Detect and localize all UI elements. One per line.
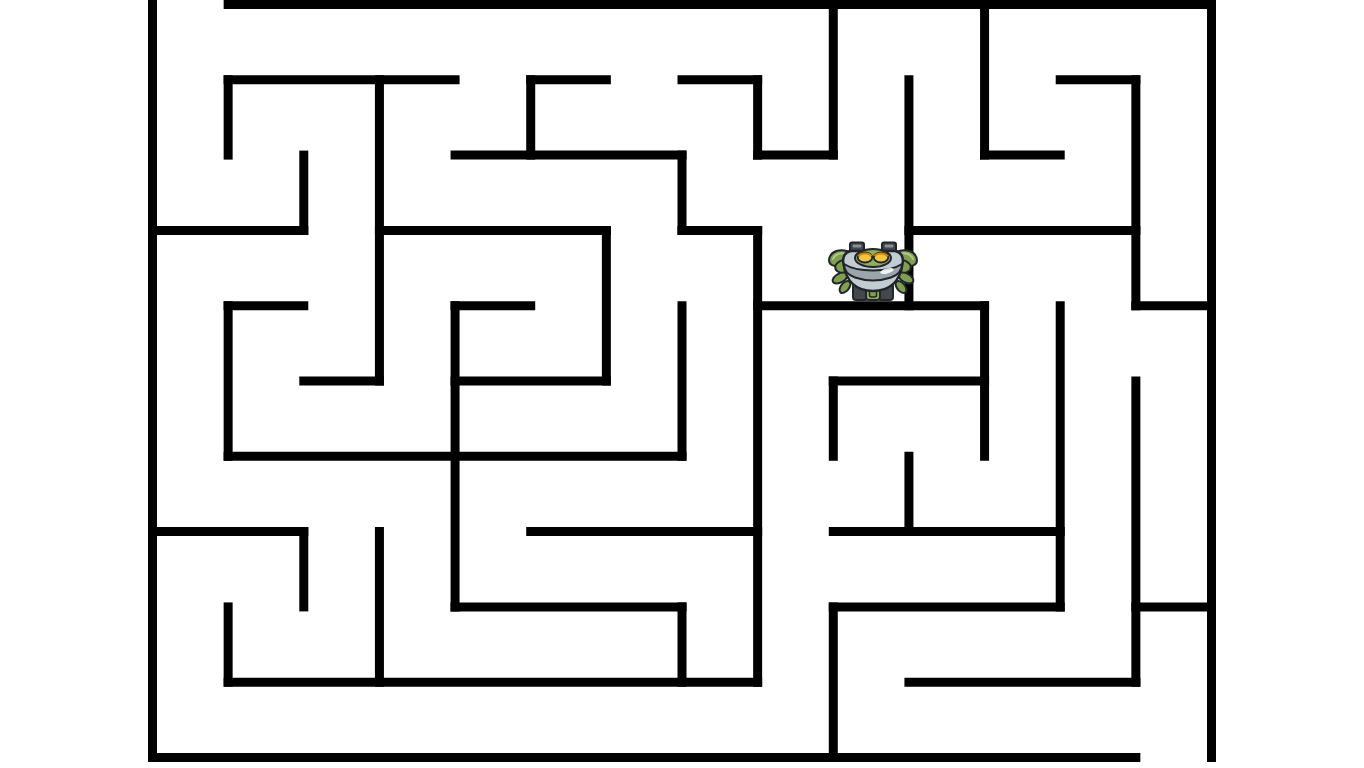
- player-crab-sprite[interactable]: [827, 241, 919, 303]
- maze-canvas: [0, 0, 1364, 768]
- maze-game-screen: [0, 0, 1364, 768]
- crab-graphic: [829, 243, 917, 301]
